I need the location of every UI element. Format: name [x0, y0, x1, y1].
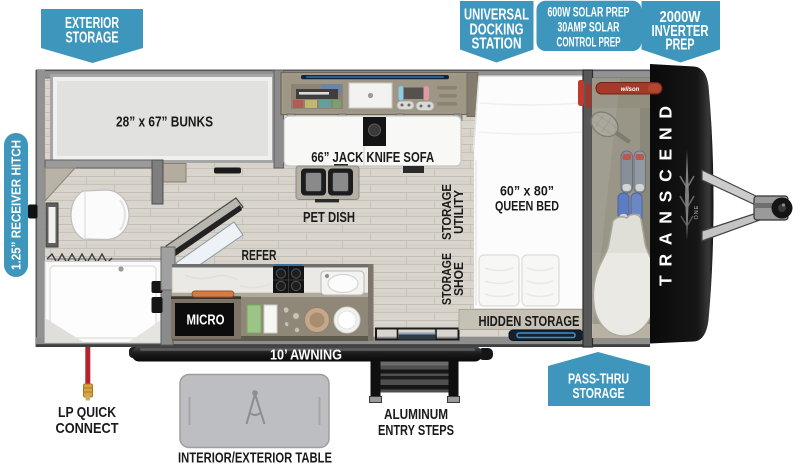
svg-text:MICRO: MICRO — [187, 313, 225, 329]
svg-text:STORAGE: STORAGE — [66, 30, 119, 47]
svg-text:QUEEN BED: QUEEN BED — [495, 198, 559, 214]
svg-text:10’ AWNING: 10’ AWNING — [270, 347, 342, 364]
svg-text:PREP: PREP — [666, 37, 695, 54]
svg-text:TRANSCEND: TRANSCEND — [656, 106, 676, 286]
svg-text:CONTROL PREP: CONTROL PREP — [557, 35, 621, 50]
svg-text:INTERIOR/EXTERIOR TABLE: INTERIOR/EXTERIOR TABLE — [178, 450, 332, 465]
svg-text:66” JACK KNIFE SOFA: 66” JACK KNIFE SOFA — [311, 149, 434, 166]
svg-text:STORAGE: STORAGE — [439, 253, 454, 305]
svg-text:ALUMINUM: ALUMINUM — [384, 406, 448, 423]
svg-text:HIDDEN STORAGE: HIDDEN STORAGE — [479, 314, 580, 330]
svg-text:PET DISH: PET DISH — [303, 209, 355, 226]
svg-text:LP QUICK: LP QUICK — [58, 404, 116, 421]
svg-text:STATION: STATION — [472, 36, 522, 53]
svg-text:wilson: wilson — [621, 87, 640, 93]
svg-text:1.25” RECEIVER HITCH: 1.25” RECEIVER HITCH — [9, 140, 24, 270]
svg-text:30AMP SOLAR: 30AMP SOLAR — [558, 20, 620, 35]
svg-text:ONE: ONE — [694, 205, 700, 220]
svg-text:ENTRY STEPS: ENTRY STEPS — [378, 422, 454, 439]
svg-text:60” x 80”: 60” x 80” — [500, 183, 554, 199]
svg-text:STORAGE: STORAGE — [439, 184, 454, 240]
svg-text:28” x 67” BUNKS: 28” x 67” BUNKS — [116, 114, 213, 131]
svg-text:600W SOLAR PREP: 600W SOLAR PREP — [548, 5, 630, 20]
svg-text:REFER: REFER — [242, 247, 277, 264]
svg-text:STORAGE: STORAGE — [573, 385, 625, 402]
svg-text:CONNECT: CONNECT — [56, 420, 119, 437]
